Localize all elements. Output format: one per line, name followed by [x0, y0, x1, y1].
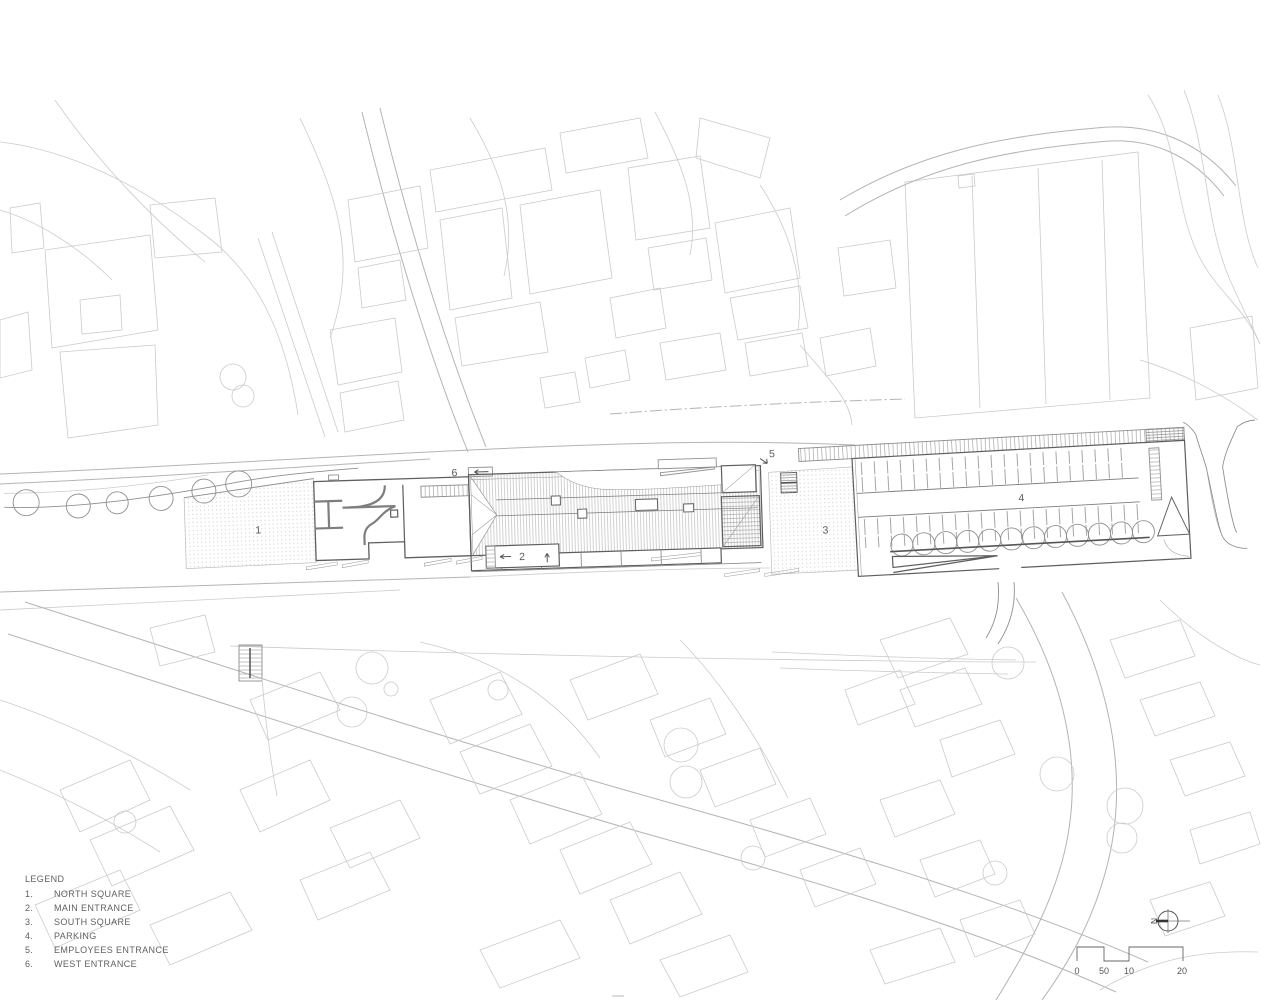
- legend-item: 5. EMPLOYEES ENTRANCE: [25, 943, 169, 957]
- site-plan-page: 1 6: [0, 0, 1261, 1000]
- skylight: [578, 509, 587, 518]
- main-entrance-label: 2: [519, 551, 525, 563]
- employees-entrance-label: 5: [769, 448, 775, 460]
- north-arrow-label: N: [1149, 918, 1159, 924]
- site-plan-drawing: 1 6: [0, 0, 1261, 1000]
- west-entrance-label: 6: [451, 467, 457, 479]
- legend-item: 2. MAIN ENTRANCE: [25, 901, 169, 915]
- main-entrance: 2: [486, 544, 560, 568]
- skylight: [635, 499, 657, 511]
- project-band: 1 6: [3, 420, 1260, 604]
- north-square: 1: [184, 479, 317, 569]
- parking: 4: [798, 427, 1191, 579]
- legend-item: 1. NORTH SQUARE: [25, 887, 169, 901]
- scale-tick-1: 50: [1099, 966, 1109, 976]
- parking-label: 4: [1018, 492, 1025, 504]
- context-buildings-lower: [0, 582, 1260, 1000]
- building-west-wing: [313, 471, 471, 561]
- legend: LEGEND 1. NORTH SQUARE 2. MAIN ENTRANCE …: [25, 872, 169, 971]
- scale-tick-2: 10: [1124, 966, 1134, 976]
- north-square-label: 1: [255, 524, 261, 536]
- legend-title: LEGEND: [25, 872, 169, 887]
- skylight: [684, 504, 694, 512]
- context-buildings-upper: [0, 90, 1260, 452]
- skylight: [551, 496, 560, 505]
- south-square-label: 3: [822, 524, 828, 536]
- scale-tick-0: 0: [1074, 966, 1079, 976]
- legend-item: 3. SOUTH SQUARE: [25, 915, 169, 929]
- employees-entrance-arrow-icon: [760, 458, 767, 463]
- scale-bar: 0 50 10 20: [1074, 947, 1187, 976]
- scale-tick-3: 20: [1177, 966, 1187, 976]
- legend-item: 6. WEST ENTRANCE: [25, 957, 169, 971]
- east-road: [1183, 420, 1259, 550]
- legend-item: 4. PARKING: [25, 929, 169, 943]
